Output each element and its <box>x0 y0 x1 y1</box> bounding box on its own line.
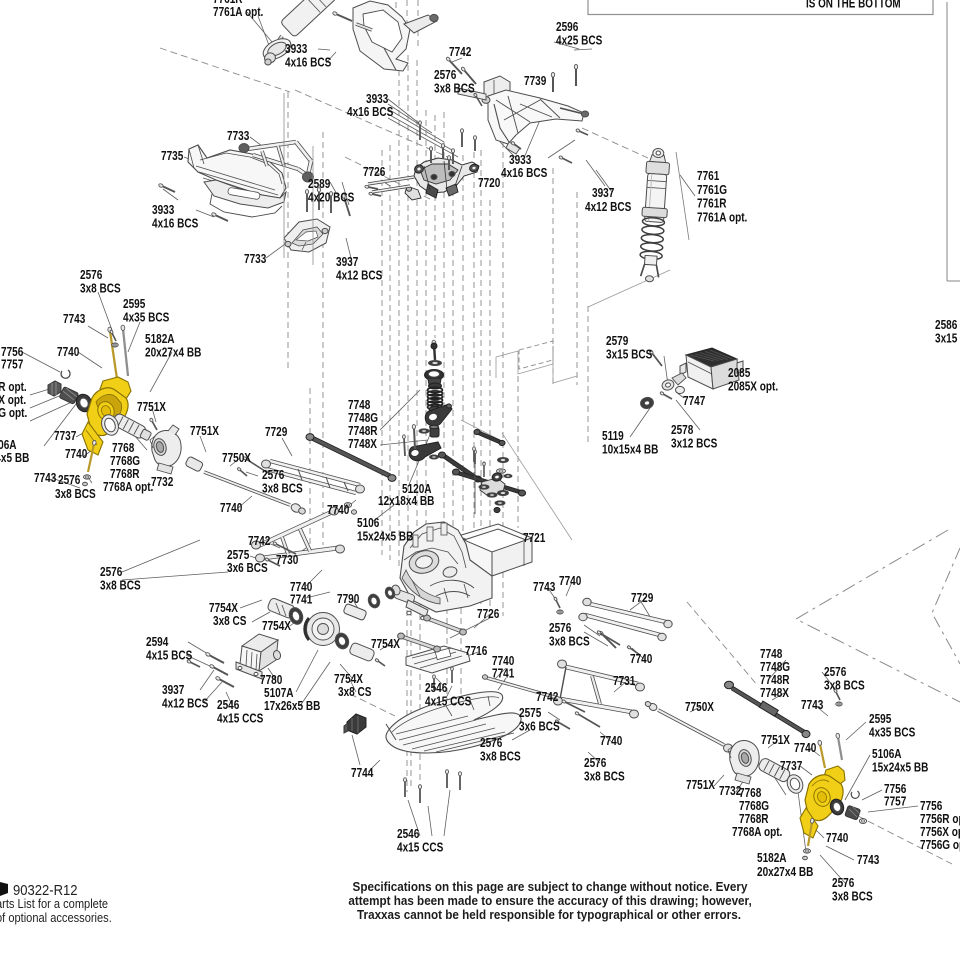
svg-text:arts List for a complete: arts List for a complete <box>0 896 108 911</box>
svg-text:attempt has been made to ensur: attempt has been made to ensure the accu… <box>348 894 751 909</box>
svg-text:7740: 7740 <box>327 503 350 518</box>
svg-text:7740: 7740 <box>57 345 80 360</box>
svg-text:7743: 7743 <box>63 312 86 327</box>
svg-text:7757: 7757 <box>1 357 23 372</box>
svg-text:7740: 7740 <box>794 741 817 756</box>
svg-text:7726: 7726 <box>477 607 500 622</box>
svg-text:7740: 7740 <box>600 734 623 749</box>
svg-text:4x15 BCS: 4x15 BCS <box>146 648 192 663</box>
svg-text:3x6 BCS: 3x6 BCS <box>519 719 560 734</box>
svg-text:3x8 BCS: 3x8 BCS <box>55 487 96 502</box>
svg-text:4x20 BCS: 4x20 BCS <box>308 190 354 205</box>
svg-text:12x18x4 BB: 12x18x4 BB <box>378 494 434 509</box>
svg-text:2576: 2576 <box>58 473 81 488</box>
svg-text:7744: 7744 <box>351 766 374 781</box>
svg-text:7741: 7741 <box>492 666 515 681</box>
svg-text:4x15 CCS: 4x15 CCS <box>425 694 471 709</box>
svg-text:3937: 3937 <box>592 186 614 201</box>
svg-text:7743: 7743 <box>34 471 57 486</box>
svg-text:4x16 BCS: 4x16 BCS <box>501 166 547 181</box>
svg-text:7740: 7740 <box>826 831 849 846</box>
svg-text:7741: 7741 <box>290 592 313 607</box>
svg-text:7750X: 7750X <box>222 451 251 466</box>
svg-text:10x15x4 BB: 10x15x4 BB <box>602 442 658 457</box>
svg-text:7761G: 7761G <box>697 183 727 198</box>
svg-text:7756G opt.: 7756G opt. <box>0 406 27 421</box>
svg-text:2085X opt.: 2085X opt. <box>728 379 778 394</box>
svg-text:7756G opt.: 7756G opt. <box>920 838 960 853</box>
svg-text:3x8 BCS: 3x8 BCS <box>584 769 625 784</box>
svg-text:3x8 BCS: 3x8 BCS <box>434 81 475 96</box>
svg-text:7754X: 7754X <box>371 637 400 652</box>
svg-text:3x8 BCS: 3x8 BCS <box>549 634 590 649</box>
svg-text:7761: 7761 <box>697 169 720 184</box>
svg-text:7742: 7742 <box>536 690 559 705</box>
svg-text:7740: 7740 <box>65 447 88 462</box>
svg-text:3x8 CS: 3x8 CS <box>213 614 247 629</box>
svg-text:3x8 BCS: 3x8 BCS <box>824 678 865 693</box>
svg-text:3x8 BCS: 3x8 BCS <box>480 749 521 764</box>
svg-text:of optional accessories.: of optional accessories. <box>0 910 112 925</box>
svg-text:4x35 BCS: 4x35 BCS <box>123 310 169 325</box>
svg-text:IS ON THE BOTTOM: IS ON THE BOTTOM <box>806 0 901 11</box>
svg-text:7751X: 7751X <box>761 733 790 748</box>
svg-text:3x15 BCS: 3x15 BCS <box>606 347 652 362</box>
svg-text:15x24x5 BB: 15x24x5 BB <box>0 451 29 466</box>
svg-text:3x12 BCS: 3x12 BCS <box>671 436 717 451</box>
svg-text:3x15 (: 3x15 ( <box>935 331 960 346</box>
svg-text:7729: 7729 <box>631 591 654 606</box>
svg-text:3x8 CS: 3x8 CS <box>338 685 372 700</box>
svg-text:Specifications on this page ar: Specifications on this page are subject … <box>353 880 748 895</box>
svg-text:7761R: 7761R <box>697 196 727 211</box>
svg-text:4x12 BCS: 4x12 BCS <box>585 200 631 215</box>
svg-text:7716: 7716 <box>465 644 488 659</box>
svg-text:3x8 BCS: 3x8 BCS <box>80 281 121 296</box>
svg-text:7751X: 7751X <box>686 778 715 793</box>
svg-text:7761A opt.: 7761A opt. <box>697 210 747 225</box>
svg-text:20x27x4 BB: 20x27x4 BB <box>145 345 201 360</box>
svg-text:4x12 BCS: 4x12 BCS <box>336 268 382 283</box>
svg-text:17x26x5 BB: 17x26x5 BB <box>264 699 320 714</box>
svg-text:4x16 BCS: 4x16 BCS <box>152 216 198 231</box>
svg-text:7733: 7733 <box>244 252 267 267</box>
svg-text:7768A opt.: 7768A opt. <box>732 825 782 840</box>
svg-text:7743: 7743 <box>533 580 556 595</box>
svg-text:4x35 BCS: 4x35 BCS <box>869 725 915 740</box>
svg-text:7726: 7726 <box>363 165 386 180</box>
svg-text:7761A opt.: 7761A opt. <box>213 5 263 20</box>
svg-text:7740: 7740 <box>630 652 653 667</box>
svg-text:15x24x5 BB: 15x24x5 BB <box>357 529 413 544</box>
svg-text:7768A opt.: 7768A opt. <box>103 480 153 495</box>
svg-text:3x8 BCS: 3x8 BCS <box>262 481 303 496</box>
svg-text:7739: 7739 <box>524 74 547 89</box>
svg-text:4x15 CCS: 4x15 CCS <box>397 840 443 855</box>
svg-text:7720: 7720 <box>478 176 501 191</box>
svg-text:7732: 7732 <box>151 475 174 490</box>
svg-text:7735: 7735 <box>161 149 184 164</box>
svg-text:7751X: 7751X <box>137 400 166 415</box>
svg-text:20x27x4 BB: 20x27x4 BB <box>757 865 813 880</box>
svg-text:7733: 7733 <box>227 129 250 144</box>
svg-text:7737: 7737 <box>54 429 76 444</box>
svg-text:7737: 7737 <box>780 759 802 774</box>
svg-text:7731: 7731 <box>613 674 636 689</box>
svg-text:15x24x5 BB: 15x24x5 BB <box>872 760 928 775</box>
svg-text:7742: 7742 <box>449 45 472 60</box>
svg-text:4x16 BCS: 4x16 BCS <box>285 55 331 70</box>
svg-text:3x8 BCS: 3x8 BCS <box>100 578 141 593</box>
svg-text:4x12 BCS: 4x12 BCS <box>162 696 208 711</box>
svg-text:7743: 7743 <box>857 853 880 868</box>
svg-text:7740: 7740 <box>559 574 582 589</box>
svg-text:4x16 BCS: 4x16 BCS <box>347 105 393 120</box>
svg-text:3x6 BCS: 3x6 BCS <box>227 561 268 576</box>
svg-text:7743: 7743 <box>801 698 824 713</box>
svg-text:7748X: 7748X <box>760 686 789 701</box>
svg-text:Traxxas cannot be held respons: Traxxas cannot be held responsible for t… <box>357 908 741 923</box>
svg-text:7740: 7740 <box>220 501 243 516</box>
svg-text:7721: 7721 <box>523 531 546 546</box>
svg-text:7751X: 7751X <box>190 424 219 439</box>
svg-text:3x8 BCS: 3x8 BCS <box>832 889 873 904</box>
svg-text:7757: 7757 <box>884 794 906 809</box>
svg-text:5182A: 5182A <box>757 851 787 866</box>
svg-text:7750X: 7750X <box>685 700 714 715</box>
svg-text:4x15 CCS: 4x15 CCS <box>217 711 263 726</box>
svg-text:7747: 7747 <box>683 394 705 409</box>
svg-text:4x25 BCS: 4x25 BCS <box>556 33 602 48</box>
svg-text:7730: 7730 <box>276 553 299 568</box>
svg-text:7729: 7729 <box>265 425 288 440</box>
svg-text:7742: 7742 <box>248 534 271 549</box>
svg-text:7754X: 7754X <box>262 619 291 634</box>
svg-text:7790: 7790 <box>337 592 360 607</box>
svg-text:7748X: 7748X <box>348 437 377 452</box>
